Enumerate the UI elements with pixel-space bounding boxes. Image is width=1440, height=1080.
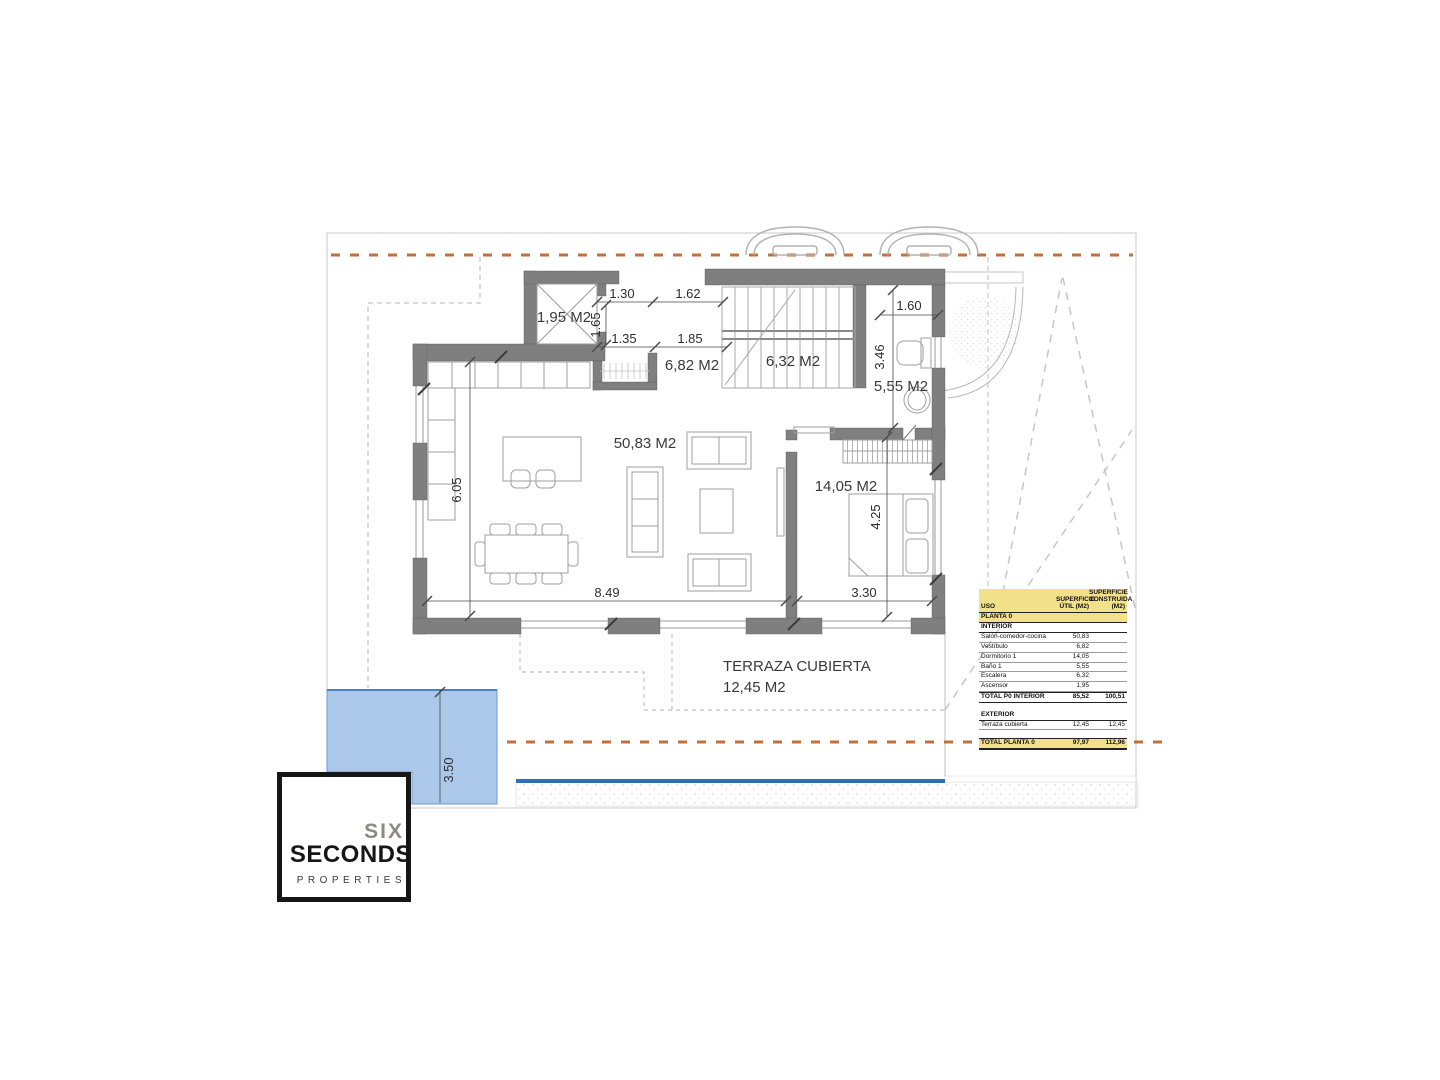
logo-six-text: SIX bbox=[290, 821, 404, 842]
bedroom-furniture bbox=[777, 427, 933, 576]
table-row: Escalera 6,32 bbox=[979, 672, 1127, 682]
beach-texture bbox=[516, 782, 1138, 806]
table-row: Baño 1 5,55 bbox=[979, 663, 1127, 673]
floorplan-page: { "plan": { "rooms": { "ascensor": "1,95… bbox=[0, 0, 1440, 1080]
table-row: Dormitorio 1 14,05 bbox=[979, 653, 1127, 663]
dim-label: 6.05 bbox=[449, 477, 464, 502]
terrace-label: TERRAZA CUBIERTA bbox=[723, 658, 871, 675]
six-seconds-logo: SIX SECONDS PROPERTIES bbox=[277, 772, 411, 902]
room-label-vestibulo: 6,82 M2 bbox=[665, 357, 719, 374]
table-section-interior: INTERIOR bbox=[979, 623, 1127, 633]
room-label-salon: 50,83 M2 bbox=[614, 435, 677, 452]
bed bbox=[849, 494, 933, 576]
toilet-icon bbox=[897, 341, 923, 365]
col-header-uso: USO bbox=[981, 604, 1056, 611]
table-row: Salón-comedor-cocina 50,83 bbox=[979, 633, 1127, 643]
sofa bbox=[627, 432, 751, 591]
table-total-planta: TOTAL PLANTA 0 97,97 112,96 bbox=[979, 738, 1127, 750]
stairs bbox=[722, 287, 855, 388]
dim-label: 1.65 bbox=[588, 312, 603, 337]
kitchen-island bbox=[503, 437, 581, 488]
dim-label: 3.46 bbox=[872, 344, 887, 369]
car-icon bbox=[746, 227, 844, 255]
dining-table bbox=[475, 524, 578, 584]
terrace-area-label: 12,45 M2 bbox=[723, 679, 786, 696]
table-row: Ascensor 1,95 bbox=[979, 682, 1127, 692]
dim-label: 1.35 bbox=[611, 331, 636, 346]
table-header-row: USO SUPERFICIE ÚTIL (M2) SUPERFICIE CONS… bbox=[979, 589, 1127, 613]
col-header-construida: SUPERFICIE CONSTRUIDA (M2) bbox=[1089, 590, 1125, 610]
dim-label: 1.62 bbox=[675, 286, 700, 301]
dim-label: 4.25 bbox=[868, 504, 883, 529]
surfaces-table: USO SUPERFICIE ÚTIL (M2) SUPERFICIE CONS… bbox=[979, 589, 1127, 750]
floorplan-drawing: 1,95 M2 6,82 M2 6,32 M2 5,55 M2 50,83 M2… bbox=[0, 0, 1440, 1080]
dim-label: 1.85 bbox=[677, 331, 702, 346]
dim-label: 1.30 bbox=[609, 286, 634, 301]
tv-unit bbox=[777, 468, 784, 536]
table-row: Terraza cubierta 12,45 12,45 bbox=[979, 721, 1127, 731]
dim-label: 1.60 bbox=[896, 298, 921, 313]
room-label-escalera: 6,32 M2 bbox=[766, 353, 820, 370]
dim-label: 8.49 bbox=[594, 585, 619, 600]
table-section-exterior: EXTERIOR bbox=[979, 711, 1127, 721]
room-label-dormitorio: 14,05 M2 bbox=[815, 478, 878, 495]
coffee-table bbox=[700, 489, 733, 533]
room-label-ascensor: 1,95 M2 bbox=[537, 309, 591, 326]
table-total-interior: TOTAL P0 INTERIOR 85,52 100,51 bbox=[979, 692, 1127, 703]
beach-texture bbox=[945, 776, 1136, 782]
car-icon bbox=[880, 227, 978, 255]
table-row: Vestíbulo 6,82 bbox=[979, 643, 1127, 653]
dim-label: 3.50 bbox=[441, 757, 456, 782]
dim-label: 3.30 bbox=[851, 585, 876, 600]
logo-seconds-text: SECONDS bbox=[290, 842, 412, 867]
table-spacer bbox=[979, 703, 1127, 711]
table-section-planta0: PLANTA 0 bbox=[979, 613, 1127, 623]
logo-properties-text: PROPERTIES bbox=[290, 876, 406, 886]
room-label-bano: 5,55 M2 bbox=[874, 378, 928, 395]
table-spacer bbox=[979, 730, 1127, 738]
col-header-util: SUPERFICIE ÚTIL (M2) bbox=[1056, 597, 1089, 611]
closet-hangers bbox=[600, 363, 650, 379]
